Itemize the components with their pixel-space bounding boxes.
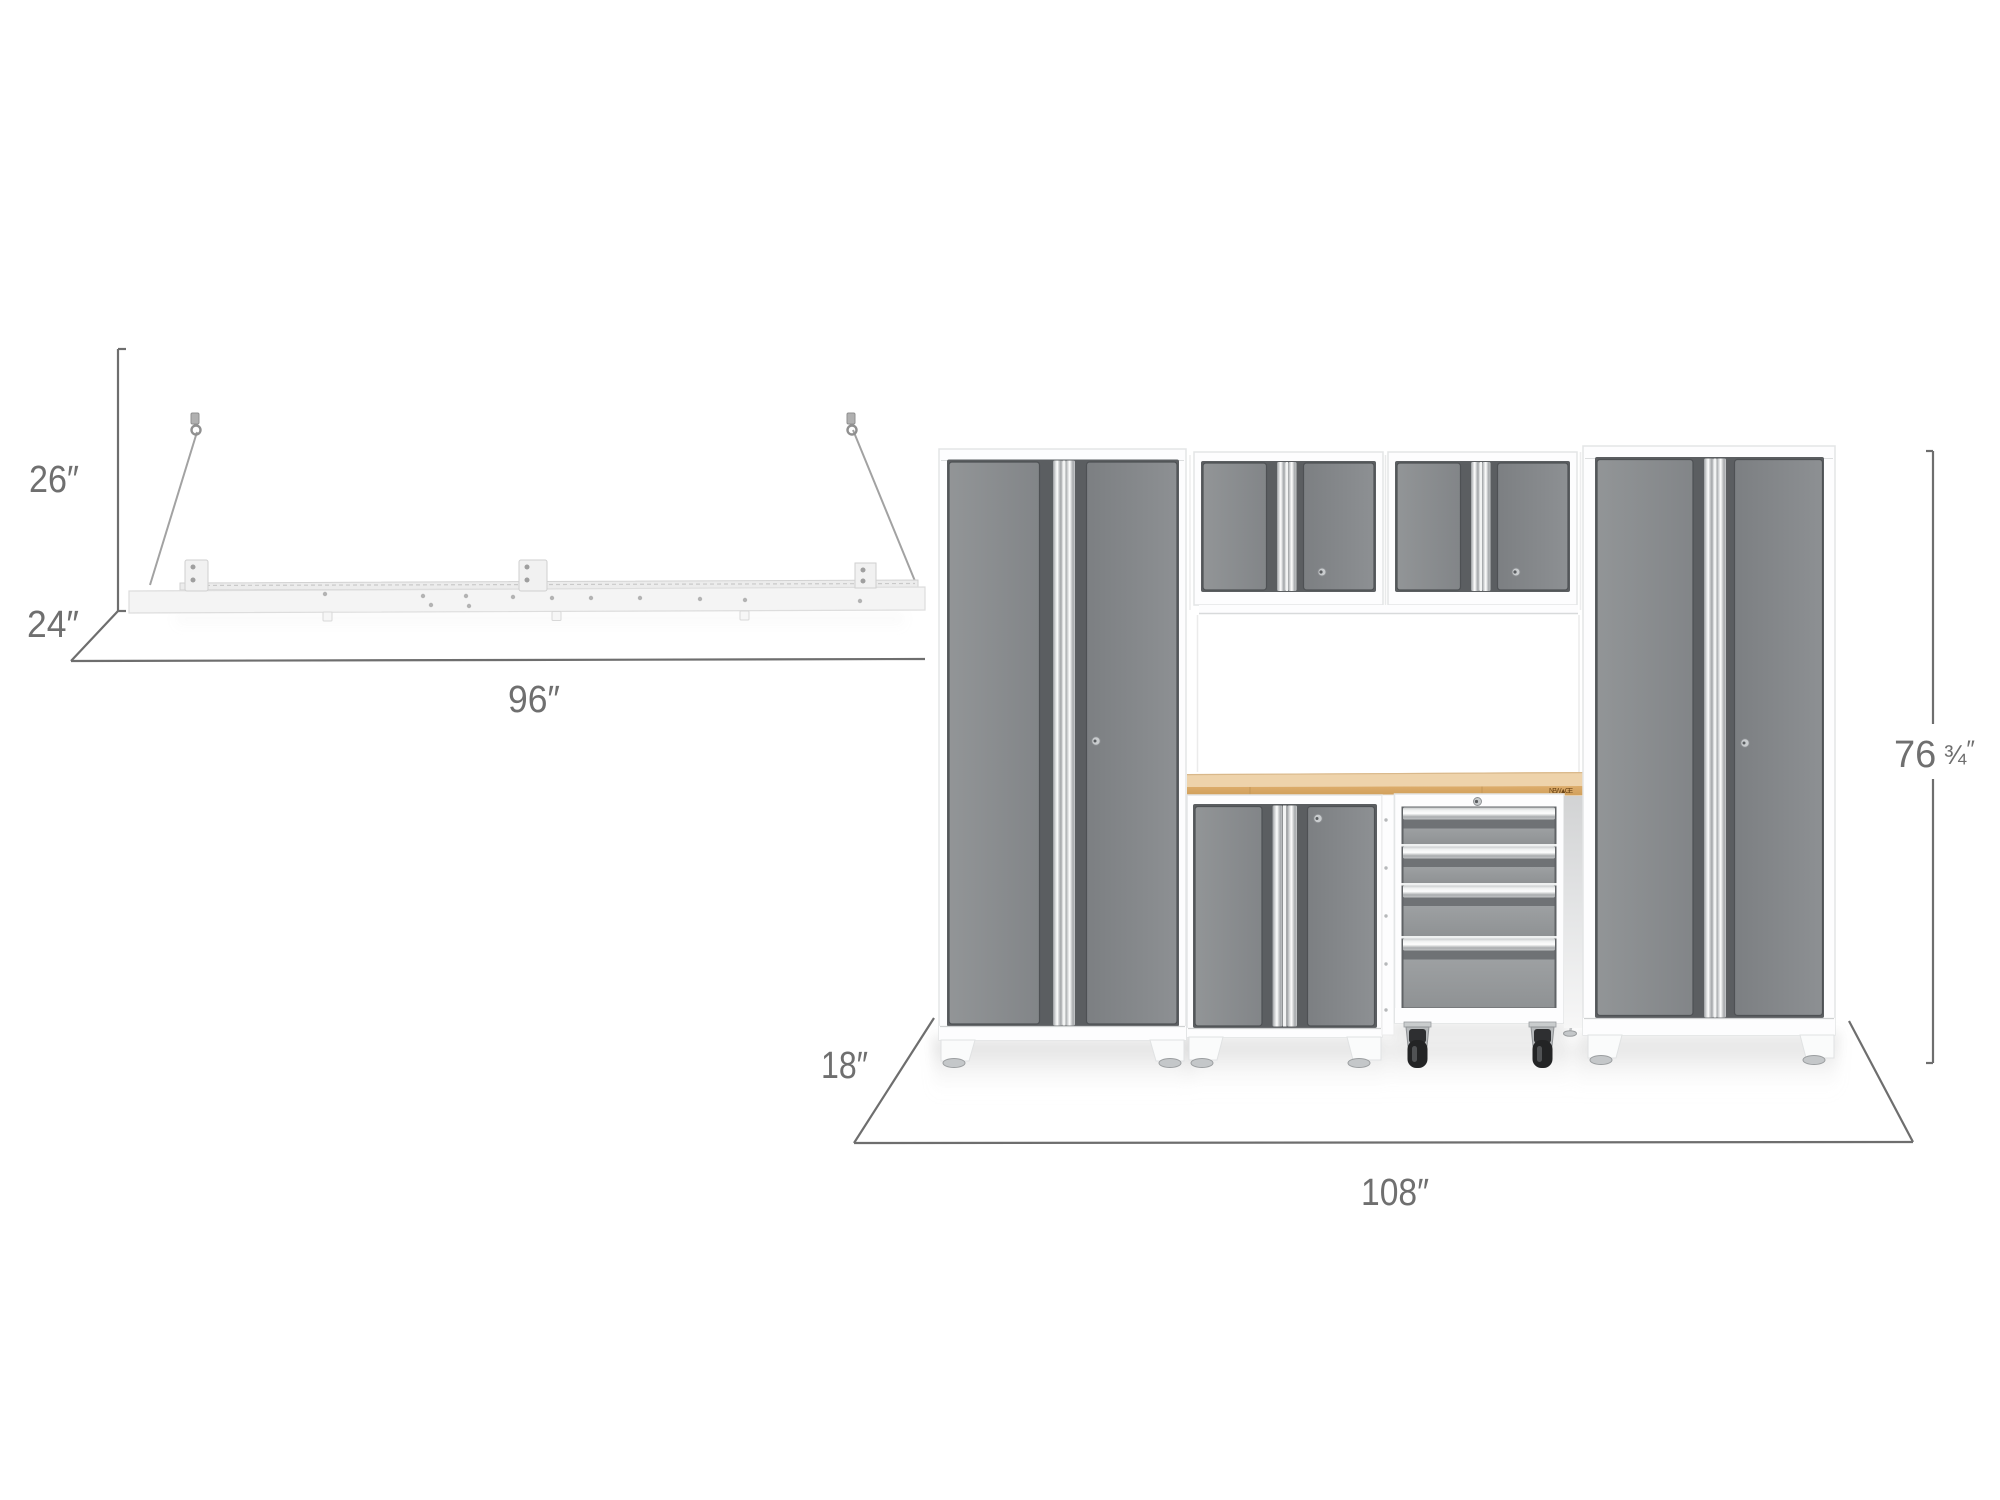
svg-text:18″: 18″ [821, 1045, 868, 1087]
svg-text:24″: 24″ [27, 604, 79, 646]
svg-text:26″: 26″ [29, 459, 79, 501]
svg-text:76 ¾″: 76 ¾″ [1894, 734, 1975, 776]
svg-text:108″: 108″ [1361, 1172, 1429, 1214]
svg-text:96″: 96″ [508, 679, 560, 721]
